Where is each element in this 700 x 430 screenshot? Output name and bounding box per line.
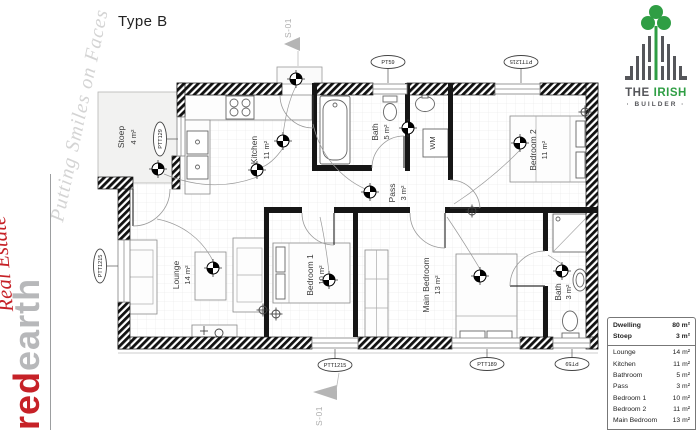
redearth-red: red (6, 371, 47, 430)
svg-text:PTT189: PTT189 (477, 362, 497, 368)
svg-text:PTT1215: PTT1215 (98, 255, 104, 278)
row-label: Bathroom (613, 372, 642, 380)
svg-text:13 m²: 13 m² (433, 275, 442, 295)
row-value: 14 m² (673, 349, 690, 357)
svg-text:PTT1215: PTT1215 (324, 363, 347, 369)
table-row: Bedroom 1 10 m² (608, 393, 695, 404)
shamrock-icon (641, 5, 671, 35)
row-label: Pass (613, 383, 628, 391)
builder-logo-line2: · BUILDER · (627, 101, 686, 108)
ref-tag-bottom-ensuite: PT59 (555, 358, 589, 371)
svg-text:Stoep: Stoep (116, 126, 126, 148)
svg-text:11 m²: 11 m² (540, 140, 549, 159)
svg-text:14 m²: 14 m² (183, 265, 192, 285)
row-value: 5 m² (676, 372, 690, 380)
row-value: 11 m² (673, 361, 690, 369)
row-label: Stoep (613, 333, 632, 341)
svg-text:PTT1215: PTT1215 (510, 58, 533, 64)
ref-tag-left-lounge: PTT1215 (94, 249, 107, 283)
svg-text:Lounge: Lounge (171, 261, 181, 290)
ref-tag-top-bath: PT59 (371, 56, 405, 69)
row-value: 80 m² (672, 322, 690, 330)
table-row: Bathroom 5 m² (608, 370, 695, 381)
table-row: Lounge 14 m² (608, 348, 695, 359)
svg-text:Bath: Bath (553, 283, 563, 301)
washing-machine-label: WM (428, 136, 437, 149)
row-value: 3 m² (676, 383, 690, 391)
svg-text:PT59: PT59 (565, 360, 578, 366)
section-marker-bottom: S-01 (313, 373, 339, 426)
svg-text:10 m²: 10 m² (317, 265, 326, 285)
svg-text:Main Bedroom: Main Bedroom (421, 257, 431, 312)
svg-text:3 m²: 3 m² (564, 284, 573, 300)
building-bars-icon (625, 32, 687, 80)
svg-text:PTT129: PTT129 (158, 129, 164, 149)
row-value: 13 m² (673, 417, 690, 425)
redearth-logo: redearth Real Estate (6, 170, 70, 430)
svg-text:3 m²: 3 m² (399, 185, 408, 201)
table-row: Bedroom 2 11 m² (608, 404, 695, 415)
floor-plan-drawing: WM (92, 4, 620, 428)
svg-text:4 m²: 4 m² (129, 129, 138, 145)
table-row: Kitchen 11 m² (608, 359, 695, 370)
svg-text:11 m²: 11 m² (262, 140, 271, 159)
row-label: Bedroom 2 (613, 406, 646, 414)
irish-builder-logo: THEIRISH · BUILDER · (613, 2, 699, 114)
area-summary-table: Dwelling 80 m² Stoep 3 m² Lounge 14 m² K… (607, 317, 696, 430)
table-row: Pass 3 m² (608, 382, 695, 393)
row-label: Main Bedroom (613, 417, 657, 425)
ref-tag-top-bedroom2: PTT1215 (504, 56, 538, 69)
svg-text:Bedroom 2: Bedroom 2 (528, 129, 538, 171)
summary-table-body: Lounge 14 m² Kitchen 11 m² Bathroom 5 m²… (608, 346, 695, 429)
svg-text:Kitchen: Kitchen (249, 136, 259, 165)
svg-text:PT59: PT59 (381, 60, 394, 66)
row-value: 10 m² (673, 395, 690, 403)
section-marker-top: S-01 (283, 18, 300, 66)
row-label: Dwelling (613, 322, 641, 330)
row-label: Lounge (613, 349, 636, 357)
svg-text:Pass: Pass (387, 184, 397, 203)
svg-text:S-01: S-01 (283, 18, 293, 38)
table-row: Dwelling 80 m² (608, 320, 695, 331)
svg-text:S-01: S-01 (314, 406, 324, 426)
ref-tag-stoep: PTT129 (154, 122, 167, 156)
row-value: 11 m² (673, 406, 690, 414)
table-row: Stoep 3 m² (608, 331, 695, 342)
row-label: Bedroom 1 (613, 395, 646, 403)
floor-plan-page: Putting Smiles on Faces redearth Real Es… (0, 0, 700, 430)
builder-logo-line1: THEIRISH (625, 87, 687, 99)
svg-text:5 m²: 5 m² (382, 124, 391, 140)
ref-tag-bottom-bedroom1: PTT1215 (318, 359, 352, 372)
summary-table-header: Dwelling 80 m² Stoep 3 m² (608, 318, 695, 346)
ref-tag-bottom-main: PTT189 (470, 358, 504, 371)
svg-text:Bath: Bath (370, 123, 380, 141)
row-value: 3 m² (676, 333, 690, 341)
table-row: Main Bedroom 13 m² (608, 416, 695, 427)
row-label: Kitchen (613, 361, 636, 369)
svg-text:Bedroom 1: Bedroom 1 (305, 254, 315, 296)
